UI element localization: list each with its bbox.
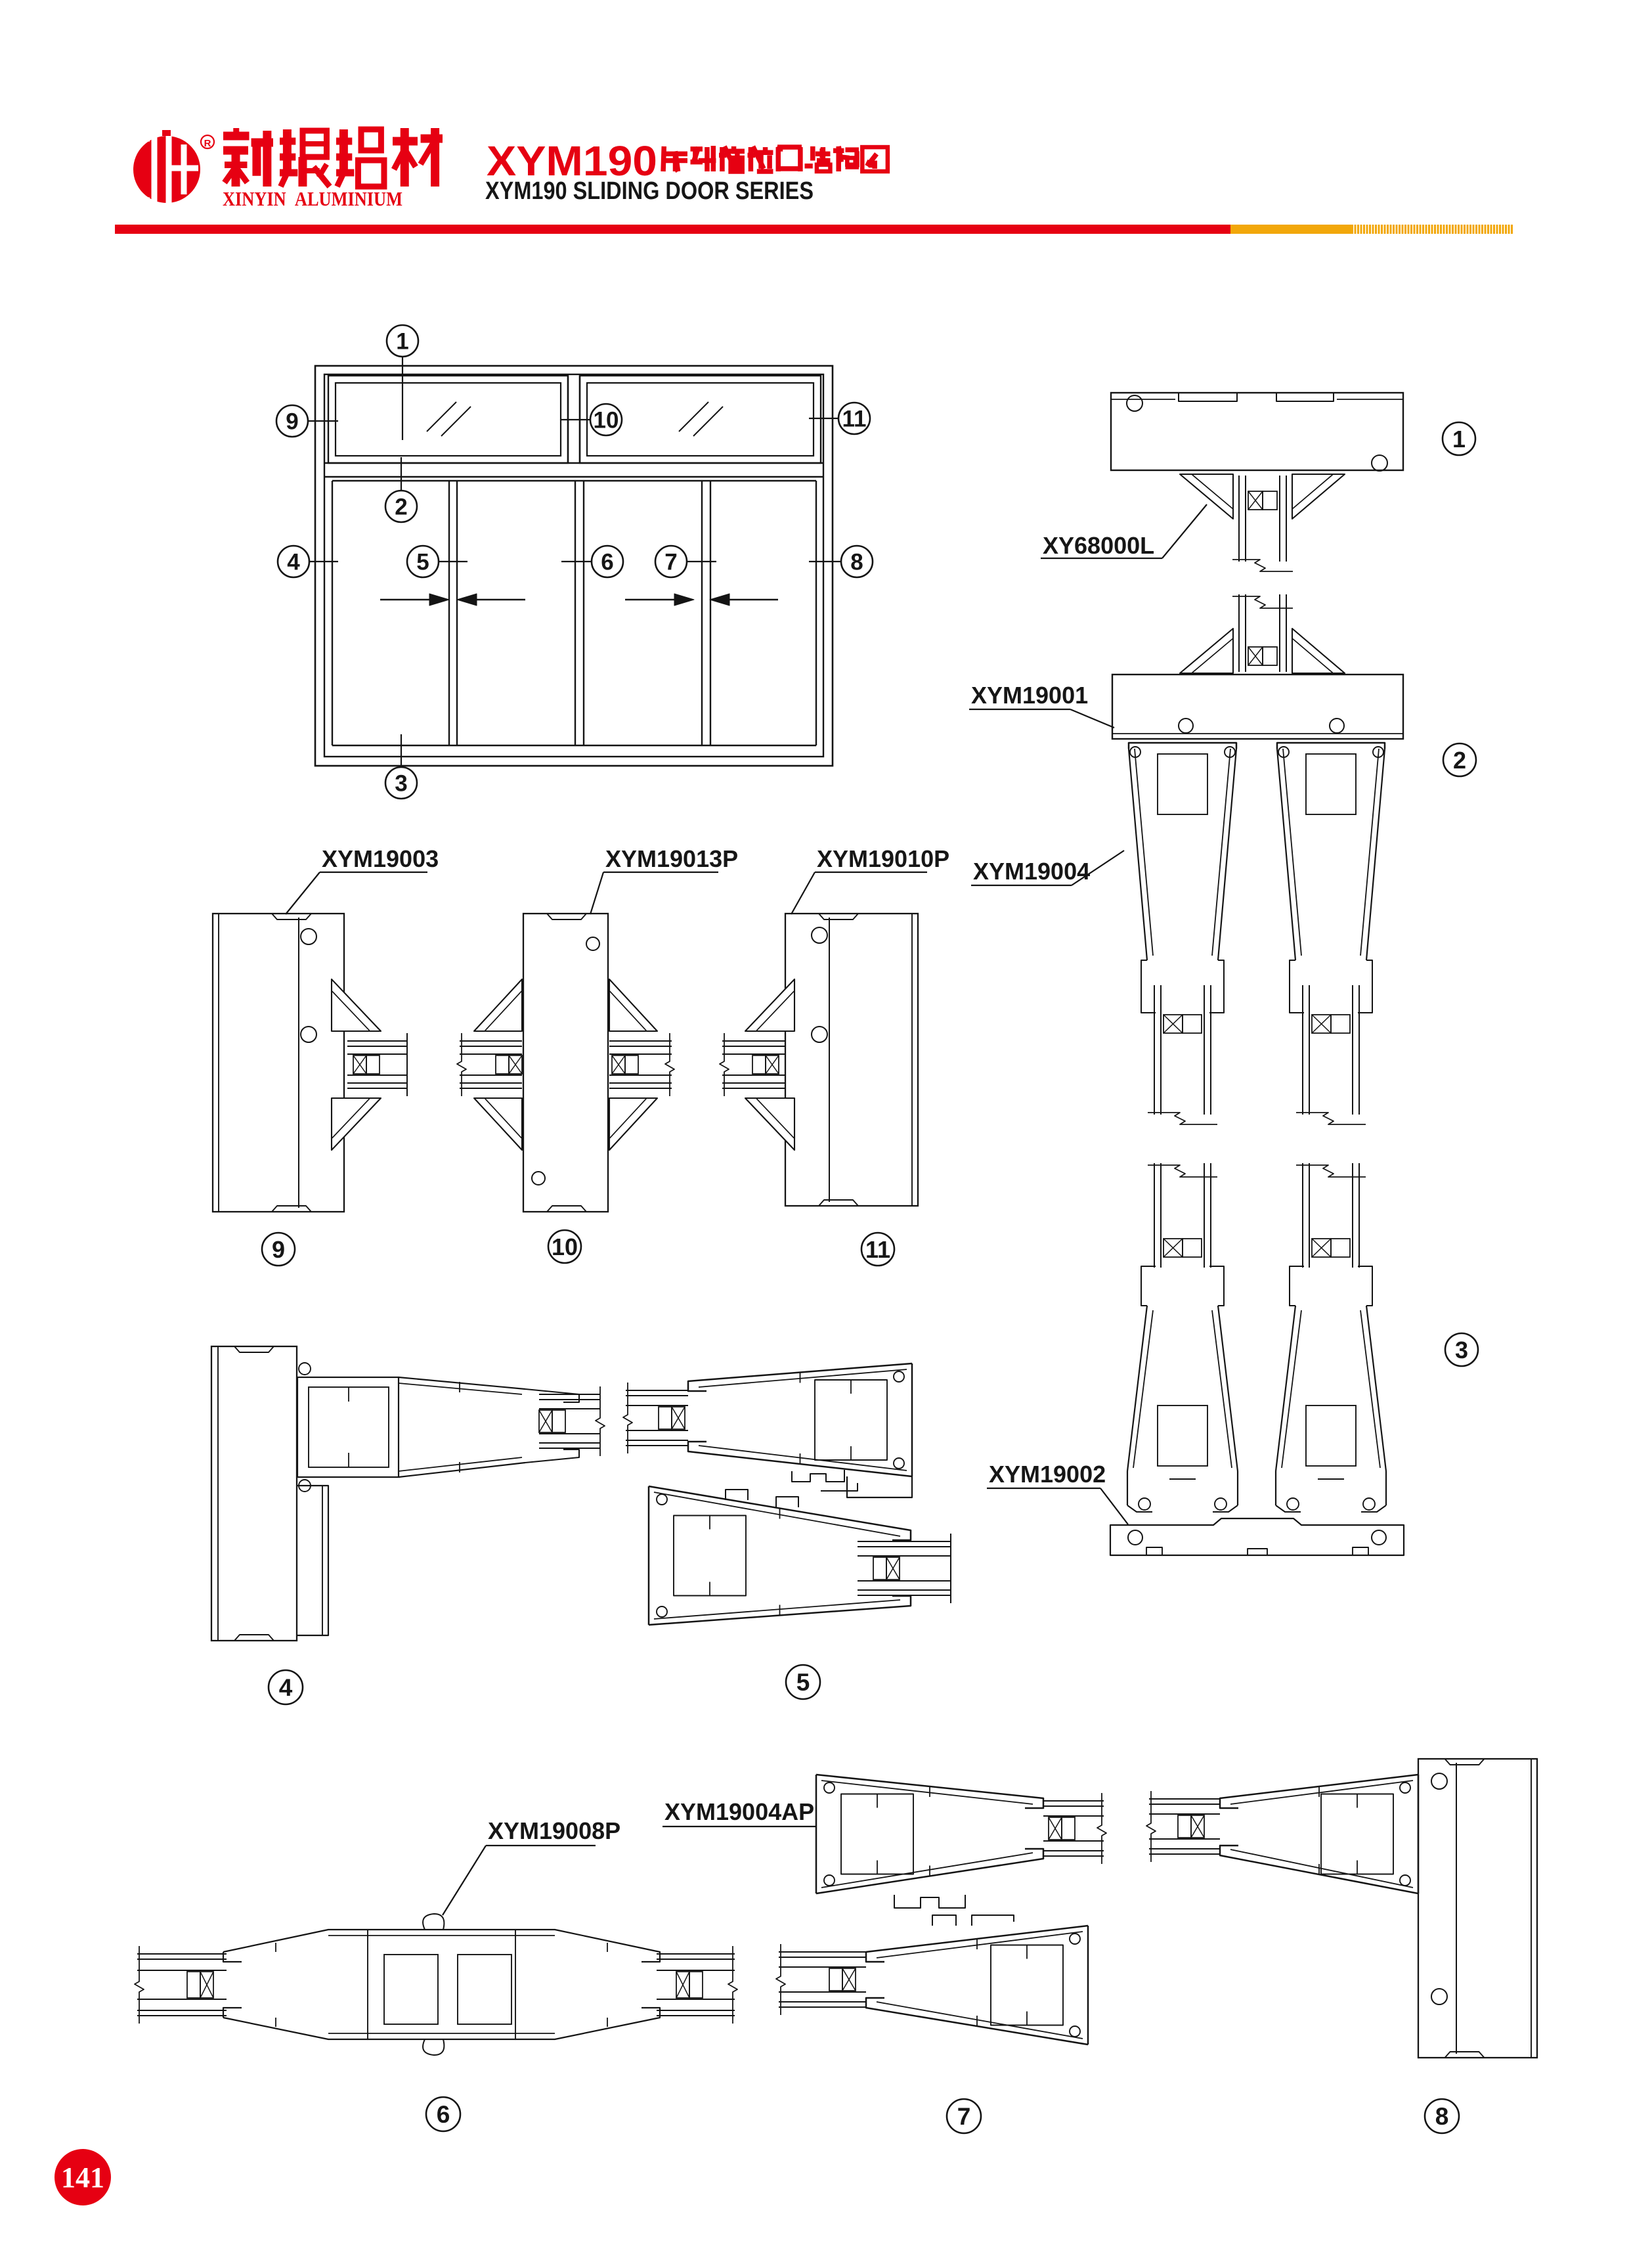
- svg-text:XY68000L: XY68000L: [1043, 532, 1154, 559]
- svg-text:8: 8: [1435, 2103, 1449, 2130]
- svg-text:R: R: [204, 138, 211, 149]
- svg-text:3: 3: [1455, 1337, 1468, 1363]
- svg-text:5: 5: [796, 1669, 810, 1696]
- svg-text:10: 10: [594, 407, 619, 433]
- svg-text:3: 3: [395, 770, 407, 796]
- svg-text:10: 10: [552, 1233, 578, 1260]
- svg-text:7: 7: [664, 549, 677, 575]
- svg-text:8: 8: [850, 549, 863, 575]
- svg-text:6: 6: [437, 2101, 450, 2128]
- svg-text:XYM19013P: XYM19013P: [605, 845, 738, 872]
- svg-text:1: 1: [1452, 426, 1466, 453]
- svg-text:4: 4: [287, 549, 300, 575]
- svg-text:6: 6: [601, 549, 613, 575]
- svg-text:5: 5: [416, 549, 429, 575]
- svg-text:9: 9: [272, 1236, 285, 1263]
- svg-text:XYM19010P: XYM19010P: [817, 845, 949, 872]
- svg-text:XYM19004AP: XYM19004AP: [664, 1798, 814, 1825]
- svg-text:XYM190 SLIDING DOOR SERIES: XYM190 SLIDING DOOR SERIES: [485, 177, 814, 205]
- svg-text:11: 11: [865, 1236, 890, 1263]
- svg-text:9: 9: [286, 409, 298, 434]
- svg-text:XINYIN ALUMINIUM: XINYIN ALUMINIUM: [223, 187, 402, 210]
- svg-text:2: 2: [395, 494, 407, 520]
- svg-text:XYM19003: XYM19003: [322, 845, 439, 872]
- svg-text:XYM19008P: XYM19008P: [488, 1817, 620, 1844]
- svg-text:XYM19002: XYM19002: [989, 1461, 1106, 1488]
- svg-text:XYM19001: XYM19001: [971, 682, 1088, 709]
- svg-text:7: 7: [957, 2103, 971, 2130]
- svg-text:11: 11: [842, 406, 867, 432]
- svg-text:1: 1: [396, 328, 408, 354]
- svg-text:XYM19004: XYM19004: [973, 858, 1090, 885]
- svg-text:141: 141: [61, 2161, 104, 2194]
- svg-text:2: 2: [1453, 747, 1466, 774]
- svg-text:4: 4: [279, 1674, 293, 1701]
